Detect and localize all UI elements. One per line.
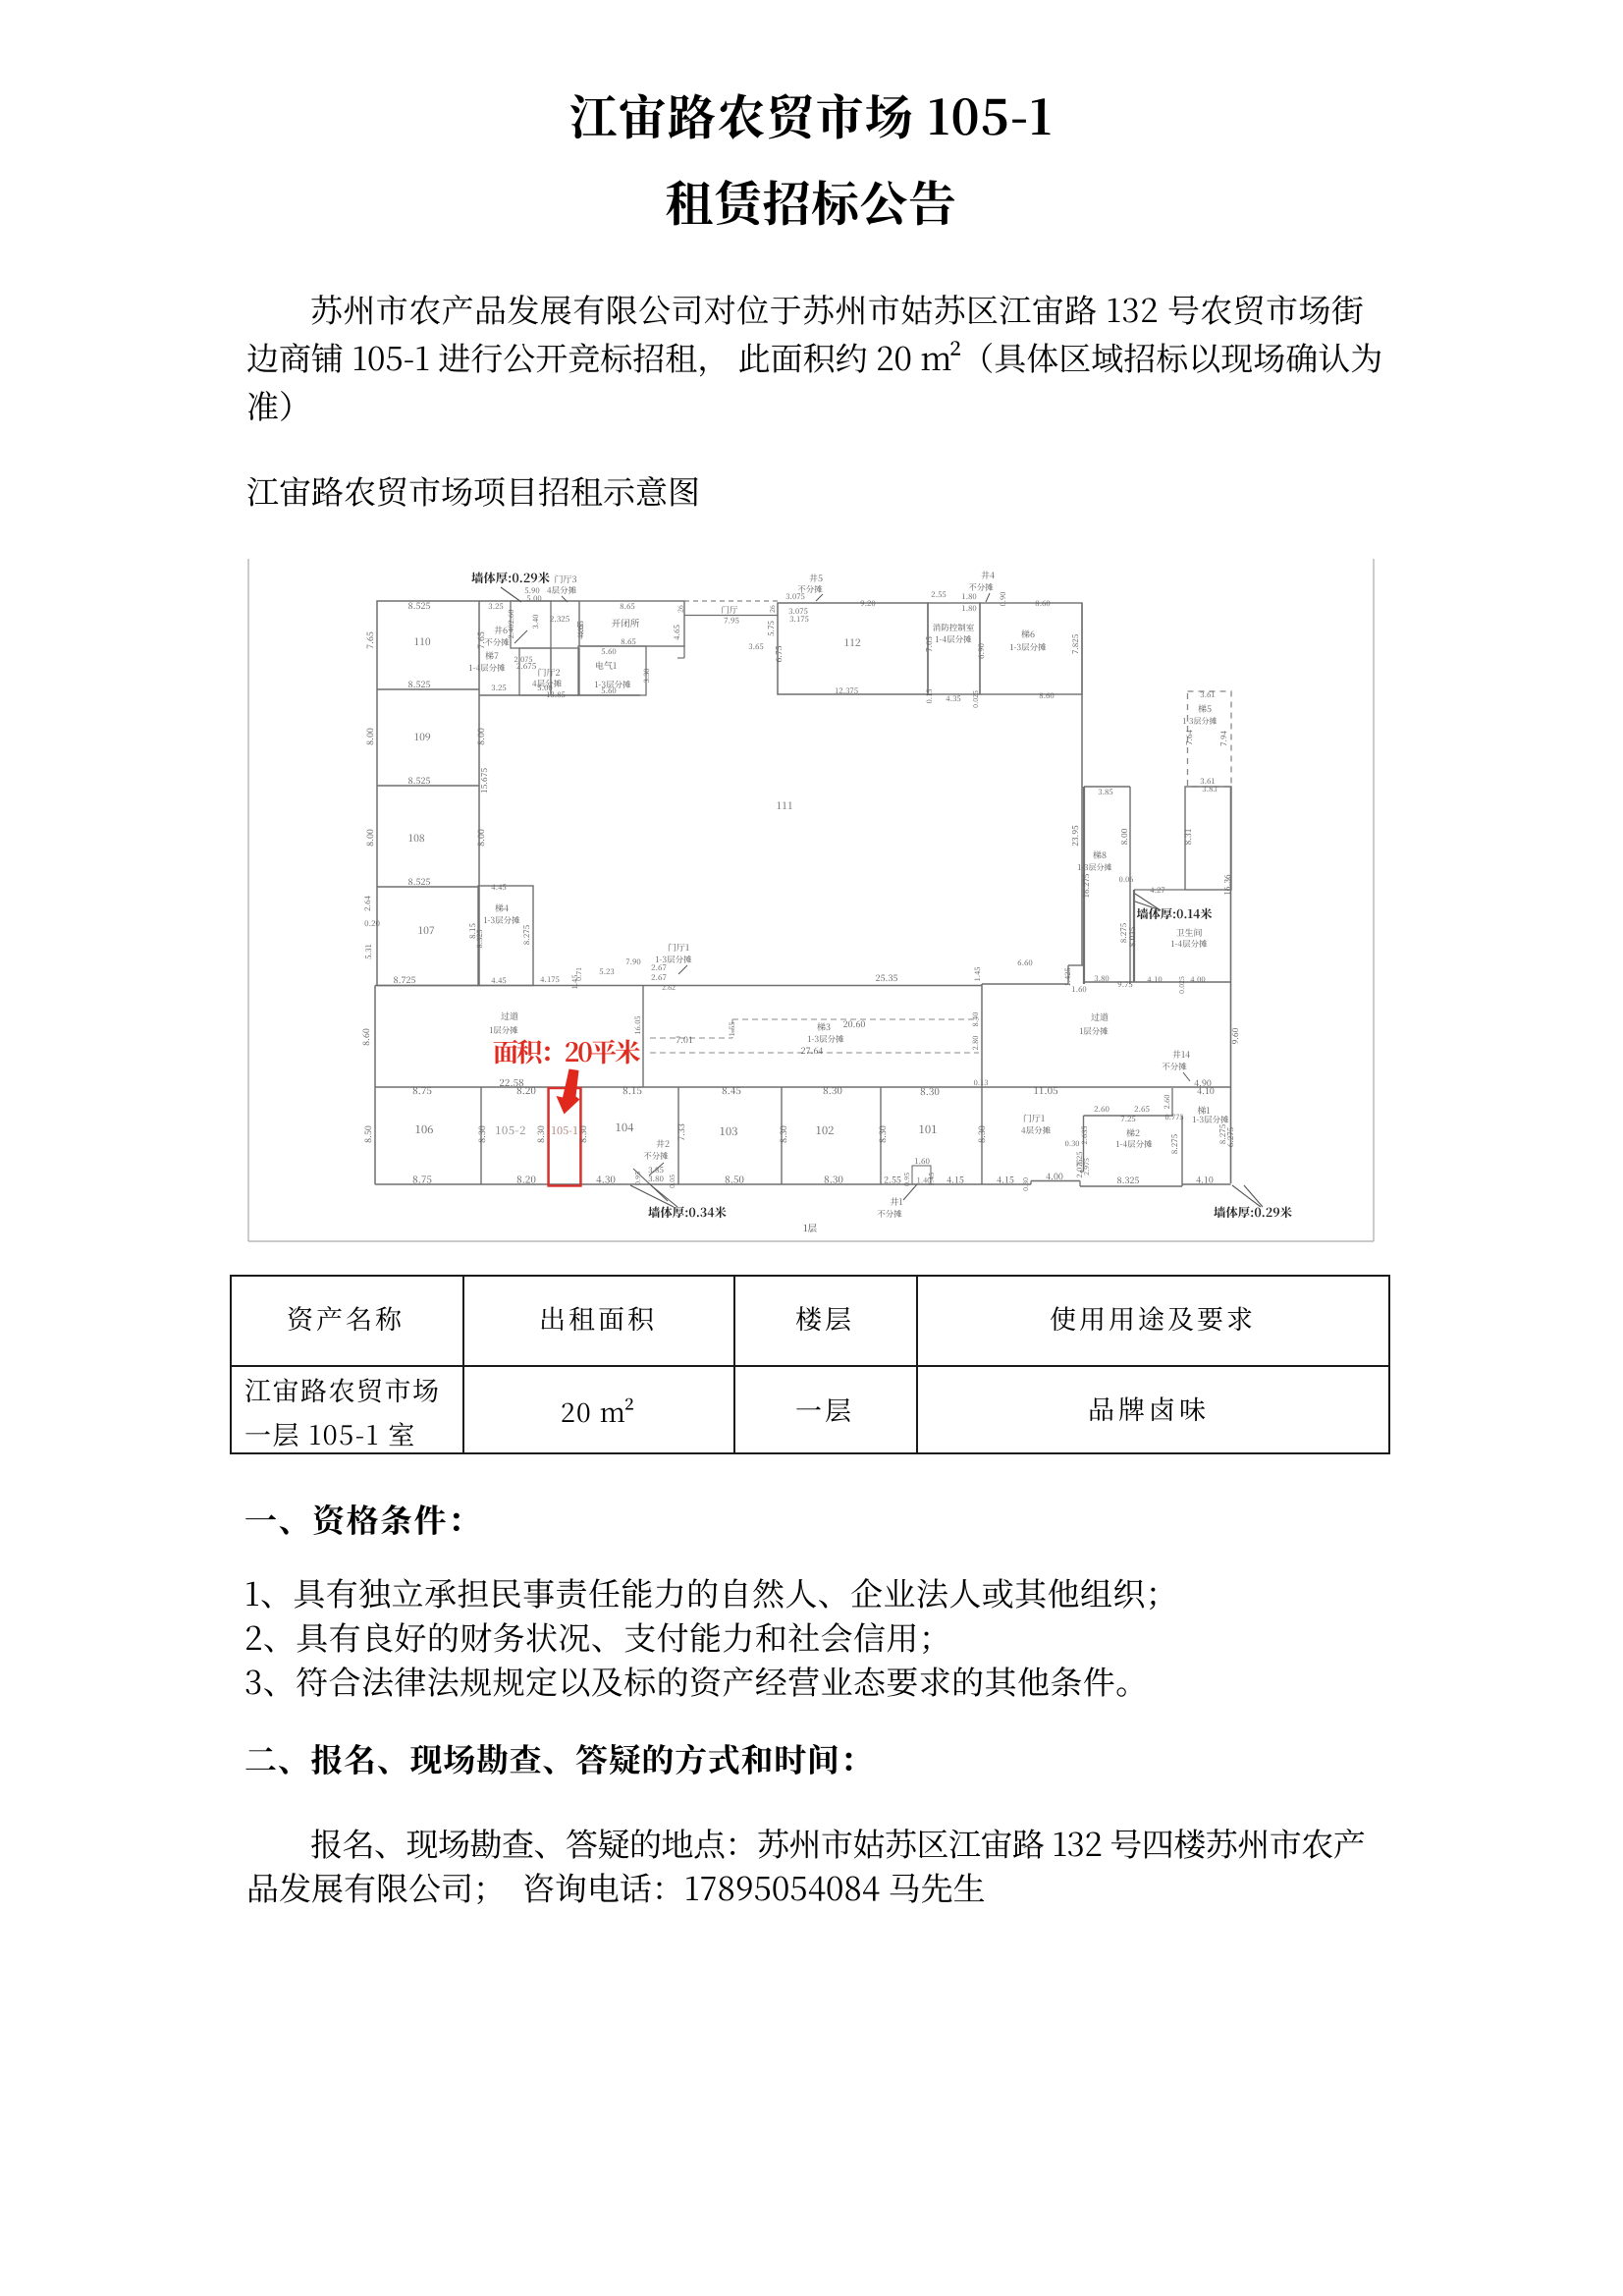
svg-text:8.275: 8.275	[1169, 1134, 1180, 1154]
svg-text:7.65: 7.65	[363, 631, 376, 649]
svg-text:3.075: 3.075	[785, 591, 805, 602]
svg-text:11.05: 11.05	[1033, 1082, 1057, 1097]
svg-text:8.525: 8.525	[408, 599, 431, 612]
svg-text:2.325: 2.325	[550, 614, 569, 625]
svg-text:4.10: 4.10	[1197, 1084, 1215, 1097]
svg-text:消防控制室: 消防控制室	[933, 622, 975, 633]
svg-text:108: 108	[407, 831, 425, 846]
svg-text:1-4层分摊: 1-4层分摊	[935, 633, 972, 645]
svg-text:4.15: 4.15	[997, 1174, 1014, 1186]
svg-text:4.10: 4.10	[1196, 1174, 1214, 1186]
svg-text:8.00: 8.00	[1118, 828, 1130, 845]
svg-text:9.60: 9.60	[1229, 1027, 1241, 1044]
svg-text:0.71: 0.71	[574, 967, 584, 981]
svg-text:2.075: 2.075	[514, 654, 533, 665]
svg-text:110: 110	[413, 634, 431, 649]
svg-text:井1: 井1	[890, 1195, 902, 1208]
svg-text:3.85: 3.85	[1098, 787, 1112, 797]
svg-text:1.45: 1.45	[927, 1173, 937, 1186]
svg-text:4.10: 4.10	[1147, 974, 1162, 985]
svg-text:门厅1: 门厅1	[668, 941, 689, 954]
svg-text:开闭所: 开闭所	[612, 616, 640, 629]
svg-text:梯7: 梯7	[485, 649, 499, 662]
svg-text:门厅: 门厅	[721, 604, 738, 616]
svg-text:8.60: 8.60	[359, 1028, 372, 1046]
svg-text:7.33: 7.33	[675, 1123, 687, 1141]
svg-text:2.62: 2.62	[662, 983, 676, 993]
svg-text:0.775: 0.775	[1165, 1112, 1184, 1122]
svg-text:8.20: 8.20	[516, 1172, 536, 1186]
svg-text:不分摊: 不分摊	[1162, 1061, 1187, 1072]
svg-text:梯4: 梯4	[495, 902, 509, 914]
svg-text:6.75: 6.75	[773, 645, 784, 662]
svg-text:105-1: 105-1	[551, 1122, 578, 1138]
svg-text:5.75: 5.75	[766, 621, 777, 636]
svg-text:1-3层分摊: 1-3层分摊	[1183, 716, 1217, 727]
svg-text:101: 101	[919, 1121, 938, 1137]
svg-text:不分摊: 不分摊	[877, 1208, 902, 1220]
svg-text:7.05: 7.05	[924, 636, 935, 652]
svg-text:1.60: 1.60	[1071, 984, 1086, 995]
svg-text:7.95: 7.95	[724, 616, 739, 627]
svg-text:3.83: 3.83	[1202, 784, 1217, 794]
svg-text:8.325: 8.325	[474, 930, 485, 949]
svg-text:8.45: 8.45	[722, 1082, 741, 1097]
svg-text:106: 106	[415, 1121, 434, 1137]
svg-text:8.30: 8.30	[975, 1125, 988, 1143]
svg-text:1-3层分摊: 1-3层分摊	[1192, 1114, 1229, 1125]
svg-text:电气1: 电气1	[595, 659, 617, 672]
svg-text:2.40: 2.40	[506, 625, 516, 639]
svg-text:8.30: 8.30	[920, 1083, 940, 1098]
svg-text:8.30: 8.30	[777, 1125, 789, 1143]
svg-text:门厅1: 门厅1	[1023, 1112, 1045, 1124]
svg-text:7.825: 7.825	[1070, 634, 1081, 654]
svg-text:8.525: 8.525	[408, 774, 431, 787]
svg-text:111: 111	[776, 798, 793, 813]
svg-text:9.20: 9.20	[860, 598, 875, 609]
svg-text:井14: 井14	[1172, 1048, 1190, 1061]
svg-text:26: 26	[768, 605, 778, 613]
svg-text:104: 104	[616, 1120, 635, 1135]
svg-text:1-3层分摊: 1-3层分摊	[1009, 641, 1047, 653]
svg-text:0.30: 0.30	[1065, 1138, 1080, 1149]
svg-text:13.85: 13.85	[546, 689, 566, 700]
svg-text:8.65: 8.65	[621, 636, 635, 647]
svg-text:1.45: 1.45	[972, 967, 983, 982]
svg-text:8.00: 8.00	[363, 829, 376, 847]
svg-text:4.45: 4.45	[491, 882, 506, 893]
svg-text:3.65: 3.65	[748, 641, 763, 652]
svg-text:面积：20平米: 面积：20平米	[493, 1031, 641, 1069]
svg-text:7.01: 7.01	[676, 1033, 693, 1046]
svg-text:4.15: 4.15	[947, 1174, 964, 1186]
svg-text:102: 102	[816, 1122, 835, 1138]
svg-text:0.025: 0.025	[1177, 976, 1187, 994]
svg-text:7.94: 7.94	[1218, 730, 1229, 745]
svg-text:2.80: 2.80	[970, 1036, 981, 1051]
svg-text:107: 107	[417, 923, 435, 938]
svg-text:5.23: 5.23	[599, 966, 614, 977]
svg-text:0.90: 0.90	[998, 592, 1008, 607]
svg-text:1-3层分摊: 1-3层分摊	[483, 914, 520, 926]
svg-text:8.035: 8.035	[1127, 927, 1138, 947]
svg-text:1-3层分摊: 1-3层分摊	[655, 954, 692, 965]
svg-text:1层分摊: 1层分摊	[1079, 1025, 1109, 1037]
svg-text:8.525: 8.525	[408, 875, 431, 888]
svg-text:3.61: 3.61	[1200, 689, 1215, 700]
svg-text:0.95: 0.95	[902, 1173, 912, 1186]
svg-text:8.725: 8.725	[394, 973, 416, 986]
svg-text:8.275: 8.275	[1217, 1124, 1228, 1144]
svg-text:4层分摊: 4层分摊	[547, 584, 577, 596]
svg-text:1.60: 1.60	[914, 1156, 930, 1167]
svg-text:4.45: 4.45	[491, 975, 506, 986]
svg-text:过道: 过道	[501, 1010, 518, 1022]
svg-text:不分摊: 不分摊	[968, 581, 994, 593]
svg-text:1层: 1层	[803, 1221, 817, 1234]
svg-text:8.00: 8.00	[474, 829, 487, 847]
svg-text:1.55: 1.55	[727, 1022, 737, 1037]
svg-text:26: 26	[676, 605, 686, 613]
svg-text:墙体厚:0.29米: 墙体厚:0.29米	[1214, 1203, 1293, 1221]
svg-text:4层分摊: 4层分摊	[1021, 1124, 1052, 1136]
svg-text:1-3层分摊: 1-3层分摊	[1078, 862, 1112, 873]
svg-text:2.55: 2.55	[884, 1174, 901, 1186]
svg-text:8.60: 8.60	[1039, 690, 1054, 701]
svg-text:8.65: 8.65	[620, 601, 634, 612]
svg-text:0.06: 0.06	[1119, 874, 1134, 885]
svg-text:0.15: 0.15	[924, 689, 935, 704]
svg-text:过道: 过道	[1091, 1011, 1109, 1023]
svg-text:5.60: 5.60	[601, 646, 616, 657]
svg-text:3.25: 3.25	[488, 601, 503, 612]
svg-text:8.15: 8.15	[622, 1082, 642, 1097]
svg-text:7.90: 7.90	[625, 957, 640, 967]
svg-text:8.30: 8.30	[475, 1125, 488, 1143]
svg-text:6.60: 6.60	[1017, 957, 1032, 968]
svg-text:8.525: 8.525	[408, 678, 431, 690]
svg-text:8.30: 8.30	[576, 1125, 589, 1143]
svg-text:4.00: 4.00	[1046, 1170, 1063, 1182]
svg-text:3.30: 3.30	[641, 669, 652, 683]
svg-text:8.30: 8.30	[534, 1125, 547, 1143]
svg-text:8.325: 8.325	[1117, 1174, 1140, 1186]
svg-text:梯3: 梯3	[817, 1020, 831, 1033]
svg-text:2.55: 2.55	[931, 589, 946, 600]
svg-text:3.175: 3.175	[789, 614, 809, 625]
svg-text:5.90: 5.90	[524, 585, 539, 596]
svg-text:0.05: 0.05	[668, 1175, 677, 1188]
svg-text:不分摊: 不分摊	[643, 1150, 669, 1162]
svg-text:2.60: 2.60	[1094, 1104, 1109, 1115]
svg-text:2.635: 2.635	[1079, 1126, 1090, 1145]
svg-text:1-4层分摊: 1-4层分摊	[1115, 1138, 1153, 1150]
svg-text:16.275: 16.275	[1081, 874, 1092, 899]
svg-text:墙体厚:0.29米: 墙体厚:0.29米	[471, 569, 551, 586]
svg-text:0.95: 0.95	[633, 1172, 643, 1185]
svg-text:4.175: 4.175	[540, 974, 560, 985]
svg-text:20.60: 20.60	[843, 1017, 866, 1030]
svg-text:3.40: 3.40	[530, 615, 541, 629]
svg-text:4.65: 4.65	[672, 625, 682, 640]
svg-text:1.80: 1.80	[961, 603, 976, 614]
svg-text:103: 103	[720, 1123, 738, 1139]
svg-text:8.75: 8.75	[412, 1172, 432, 1186]
svg-text:2.975: 2.975	[1082, 1158, 1092, 1175]
svg-text:2.64: 2.64	[362, 895, 373, 910]
svg-text:1-4层分摊: 1-4层分摊	[468, 662, 506, 674]
svg-text:109: 109	[413, 730, 431, 744]
svg-text:2.67: 2.67	[651, 972, 667, 983]
svg-text:2.60: 2.60	[1162, 1095, 1172, 1110]
svg-text:4.00: 4.00	[1190, 974, 1205, 985]
svg-text:105-2: 105-2	[495, 1122, 526, 1138]
svg-text:8.60: 8.60	[1035, 598, 1050, 609]
svg-text:1-4层分摊: 1-4层分摊	[1170, 938, 1208, 950]
svg-text:4.65: 4.65	[575, 621, 586, 636]
svg-text:9.75: 9.75	[1117, 979, 1132, 990]
svg-text:8.50: 8.50	[361, 1125, 374, 1143]
svg-text:23.95: 23.95	[1069, 825, 1081, 847]
svg-text:15.675: 15.675	[478, 768, 490, 793]
svg-text:3.25: 3.25	[491, 683, 506, 693]
svg-text:8.275: 8.275	[521, 925, 532, 945]
svg-text:2.60: 2.60	[506, 610, 516, 625]
svg-text:8.00: 8.00	[474, 728, 487, 745]
svg-text:梯6: 梯6	[1021, 628, 1035, 640]
svg-text:8.20: 8.20	[516, 1082, 536, 1097]
svg-text:梯8: 梯8	[1093, 848, 1107, 861]
svg-text:墙体厚:0.14米: 墙体厚:0.14米	[1136, 905, 1212, 922]
svg-text:6.90: 6.90	[976, 642, 987, 658]
svg-text:5.31: 5.31	[363, 944, 374, 959]
svg-text:7.25: 7.25	[1120, 1114, 1135, 1124]
svg-text:井4: 井4	[981, 569, 995, 581]
svg-text:8.00: 8.00	[363, 728, 376, 745]
svg-text:7.64: 7.64	[1184, 729, 1195, 744]
svg-text:3.80: 3.80	[1094, 973, 1109, 984]
svg-text:8.50: 8.50	[725, 1172, 744, 1186]
svg-text:8.31: 8.31	[1182, 828, 1194, 845]
svg-text:112: 112	[843, 635, 861, 650]
svg-text:27.64: 27.64	[801, 1044, 824, 1057]
svg-text:8.30: 8.30	[823, 1082, 842, 1097]
svg-text:5.60: 5.60	[601, 685, 616, 696]
svg-text:3.80: 3.80	[648, 1174, 664, 1184]
svg-text:8.75: 8.75	[412, 1082, 432, 1097]
svg-text:8.30: 8.30	[876, 1125, 889, 1143]
svg-text:井2: 井2	[656, 1137, 670, 1150]
svg-text:0.20: 0.20	[364, 918, 380, 929]
svg-text:梯5: 梯5	[1198, 702, 1212, 715]
svg-text:25.35: 25.35	[876, 971, 898, 984]
svg-text:12.375: 12.375	[835, 685, 858, 696]
svg-text:0.30: 0.30	[1021, 1177, 1031, 1191]
svg-text:4.35: 4.35	[946, 693, 960, 704]
svg-text:4.30: 4.30	[596, 1172, 616, 1186]
svg-text:2.65: 2.65	[1134, 1104, 1150, 1115]
svg-text:8.30: 8.30	[824, 1172, 843, 1186]
svg-text:墙体厚:0.34米: 墙体厚:0.34米	[648, 1203, 728, 1221]
